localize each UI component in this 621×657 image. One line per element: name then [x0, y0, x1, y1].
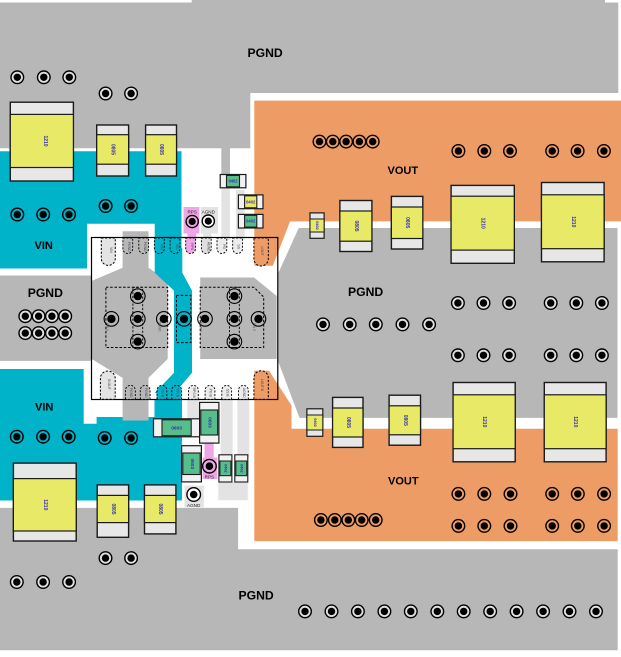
svg-text:B OUT: B OUT — [107, 379, 111, 389]
svg-text:VOUT: VOUT — [388, 476, 419, 488]
svg-text:1210: 1210 — [42, 499, 48, 510]
svg-text:0603: 0603 — [207, 417, 213, 428]
svg-text:VIN B: VIN B — [161, 388, 165, 398]
svg-text:AGND: AGND — [187, 503, 201, 508]
svg-text:PGND: PGND — [144, 388, 148, 398]
svg-text:RPS: RPS — [205, 475, 214, 480]
svg-text:0402: 0402 — [313, 418, 317, 426]
svg-text:1210: 1210 — [572, 416, 578, 427]
svg-text:PIN 9: PIN 9 — [105, 323, 109, 331]
svg-text:PGND: PGND — [348, 285, 383, 299]
svg-text:LOUT: LOUT — [260, 246, 264, 255]
svg-text:LOUT B: LOUT B — [260, 379, 264, 392]
svg-text:PGND: PGND — [248, 46, 283, 60]
svg-text:RPS: RPS — [187, 210, 196, 215]
svg-text:SS: SS — [237, 244, 241, 249]
svg-text:0805: 0805 — [158, 144, 164, 155]
svg-text:0805: 0805 — [157, 503, 163, 514]
svg-text:VIN: VIN — [175, 244, 179, 250]
svg-text:VIN B: VIN B — [175, 388, 179, 398]
svg-text:0603: 0603 — [171, 426, 182, 432]
svg-text:PGND: PGND — [127, 242, 131, 252]
svg-text:0805: 0805 — [110, 503, 116, 514]
svg-text:0805: 0805 — [404, 217, 410, 228]
svg-text:RPS: RPS — [190, 243, 194, 251]
svg-text:AGND: AGND — [207, 242, 211, 252]
svg-text:VOUT: VOUT — [388, 165, 419, 177]
svg-text:SS B: SS B — [225, 389, 229, 397]
svg-text:0402: 0402 — [239, 464, 243, 472]
svg-text:PGND: PGND — [28, 286, 63, 300]
svg-text:AGND: AGND — [242, 388, 246, 398]
svg-text:PGND: PGND — [239, 589, 274, 603]
svg-text:0805: 0805 — [345, 417, 351, 428]
svg-text:0402: 0402 — [246, 199, 256, 204]
svg-text:1210: 1210 — [480, 218, 486, 229]
svg-text:0805: 0805 — [353, 220, 359, 231]
svg-text:0402: 0402 — [315, 221, 319, 229]
svg-text:PGND: PGND — [129, 388, 133, 398]
svg-text:PGND: PGND — [143, 242, 147, 252]
svg-text:0805: 0805 — [110, 144, 116, 155]
svg-text:0402: 0402 — [246, 219, 256, 224]
svg-text:AGND: AGND — [202, 210, 216, 215]
svg-text:0603: 0603 — [189, 458, 195, 469]
svg-text:1210: 1210 — [42, 135, 48, 146]
svg-text:VIN: VIN — [35, 402, 53, 414]
svg-text:VIN: VIN — [159, 244, 163, 250]
svg-text:0402: 0402 — [223, 464, 227, 472]
svg-text:PIN 5: PIN 5 — [252, 323, 256, 331]
svg-text:PG B: PG B — [209, 389, 213, 398]
svg-text:VIN: VIN — [109, 247, 113, 253]
svg-text:PGND: PGND — [199, 322, 203, 332]
svg-text:PG: PG — [222, 244, 226, 249]
svg-text:1210: 1210 — [570, 216, 576, 227]
svg-text:1210: 1210 — [481, 416, 487, 427]
svg-text:0805: 0805 — [402, 415, 408, 426]
svg-text:VIN: VIN — [35, 240, 53, 252]
svg-text:RPS B: RPS B — [192, 388, 196, 399]
svg-text:0402: 0402 — [228, 179, 238, 184]
svg-text:PGND: PGND — [158, 322, 162, 332]
